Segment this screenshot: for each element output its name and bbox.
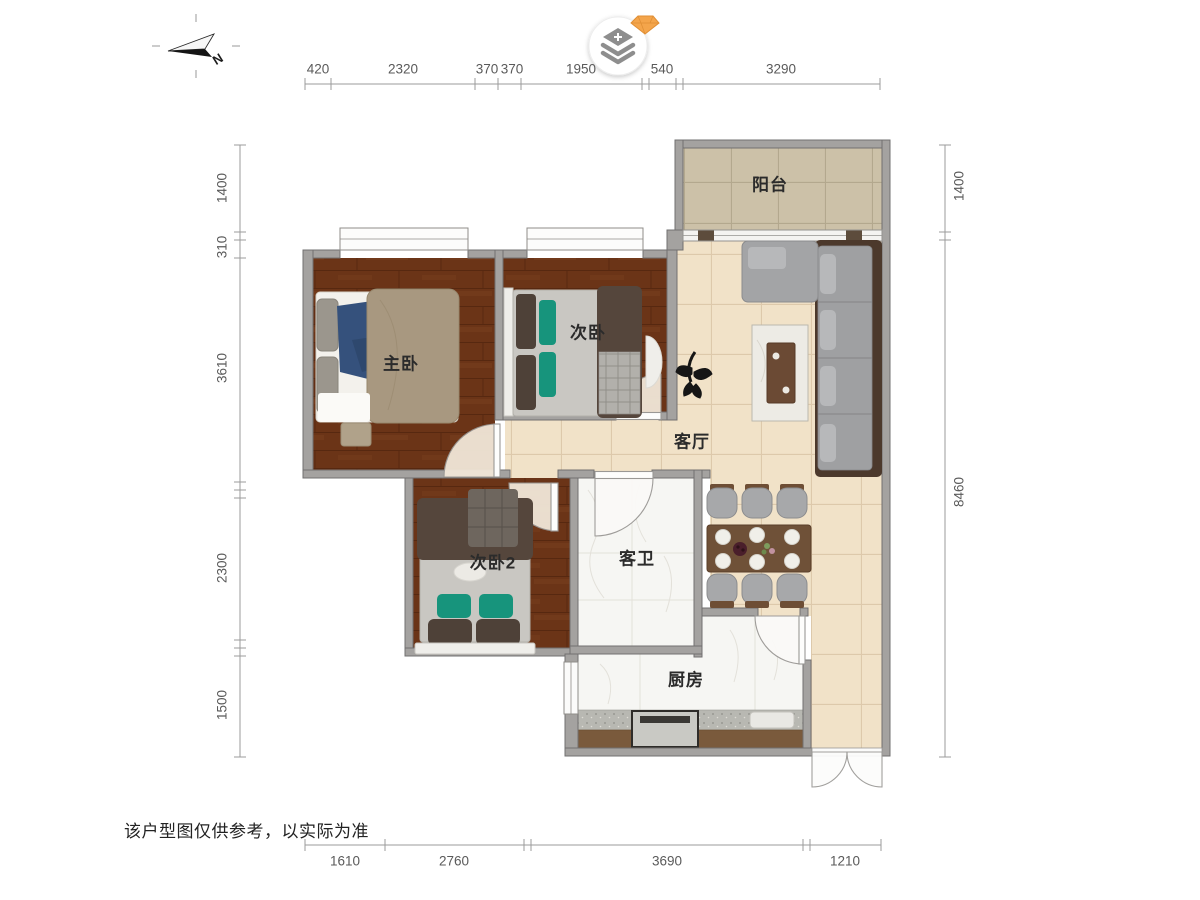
entry-door-left <box>812 752 847 787</box>
dim-top-3: 370 <box>476 62 499 77</box>
room-label-living: 客厅 <box>674 428 710 453</box>
layers-badge-button[interactable] <box>589 16 659 75</box>
bed-bench <box>341 423 371 446</box>
room-label-kitchen: 厨房 <box>668 666 704 691</box>
dim-bottom-1: 1610 <box>330 854 360 869</box>
room-label-bedroom3: 次卧2 <box>470 549 516 574</box>
entry-door-right <box>847 752 882 787</box>
dim-left-1: 1400 <box>215 173 230 203</box>
dim-left-5: 1500 <box>215 690 230 720</box>
compass-north-label: N <box>210 50 226 68</box>
dim-right-1: 1400 <box>952 171 967 201</box>
sink <box>750 712 794 728</box>
dim-bottom-4: 1210 <box>830 854 860 869</box>
room-label-master: 主卧 <box>383 350 419 375</box>
room-label-bedroom2: 次卧 <box>570 319 606 344</box>
disclaimer-note: 该户型图仅供参考，以实际为准 <box>124 817 369 842</box>
dim-top-5: 1950 <box>566 62 596 77</box>
room-label-bathroom: 客卫 <box>619 545 655 570</box>
floorplan-drawing: N <box>0 0 1200 900</box>
dim-top-7: 3290 <box>766 62 796 77</box>
kitchen-counter <box>578 710 803 748</box>
dim-right-2: 8460 <box>952 477 967 507</box>
dining-set <box>707 484 811 608</box>
compass: N <box>152 14 240 78</box>
dim-left-4: 2300 <box>215 553 230 583</box>
dim-bottom-3: 3690 <box>652 854 682 869</box>
dim-top-1: 420 <box>307 62 330 77</box>
fruit-bowl <box>733 542 747 556</box>
north-arrow-icon <box>168 34 214 51</box>
dim-top-6: 540 <box>651 62 674 77</box>
coffee-table <box>752 325 808 421</box>
dim-left-2: 310 <box>215 236 230 259</box>
dim-top-2: 2320 <box>388 62 418 77</box>
room-label-balcony: 阳台 <box>752 171 788 196</box>
floorplan-page: N 阳台 主卧 次卧 客厅 次卧2 客卫 厨房 420 2320 370 370… <box>0 0 1200 900</box>
dim-left-3: 3610 <box>215 353 230 383</box>
dim-top-4: 370 <box>501 62 524 77</box>
bedroom2-bed <box>504 286 662 418</box>
dim-bottom-2: 2760 <box>439 854 469 869</box>
